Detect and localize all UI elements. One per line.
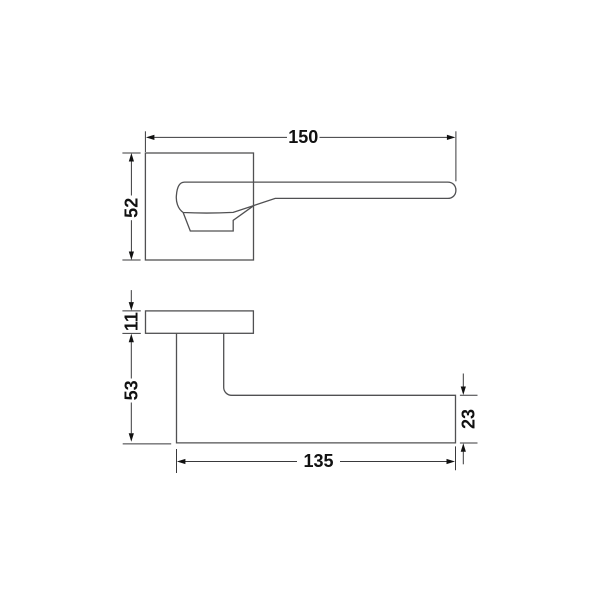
svg-text:150: 150 [288, 127, 318, 147]
svg-text:135: 135 [303, 451, 333, 471]
svg-text:53: 53 [121, 380, 141, 400]
svg-text:52: 52 [121, 198, 141, 218]
svg-text:11: 11 [121, 312, 141, 331]
svg-text:23: 23 [459, 409, 479, 429]
